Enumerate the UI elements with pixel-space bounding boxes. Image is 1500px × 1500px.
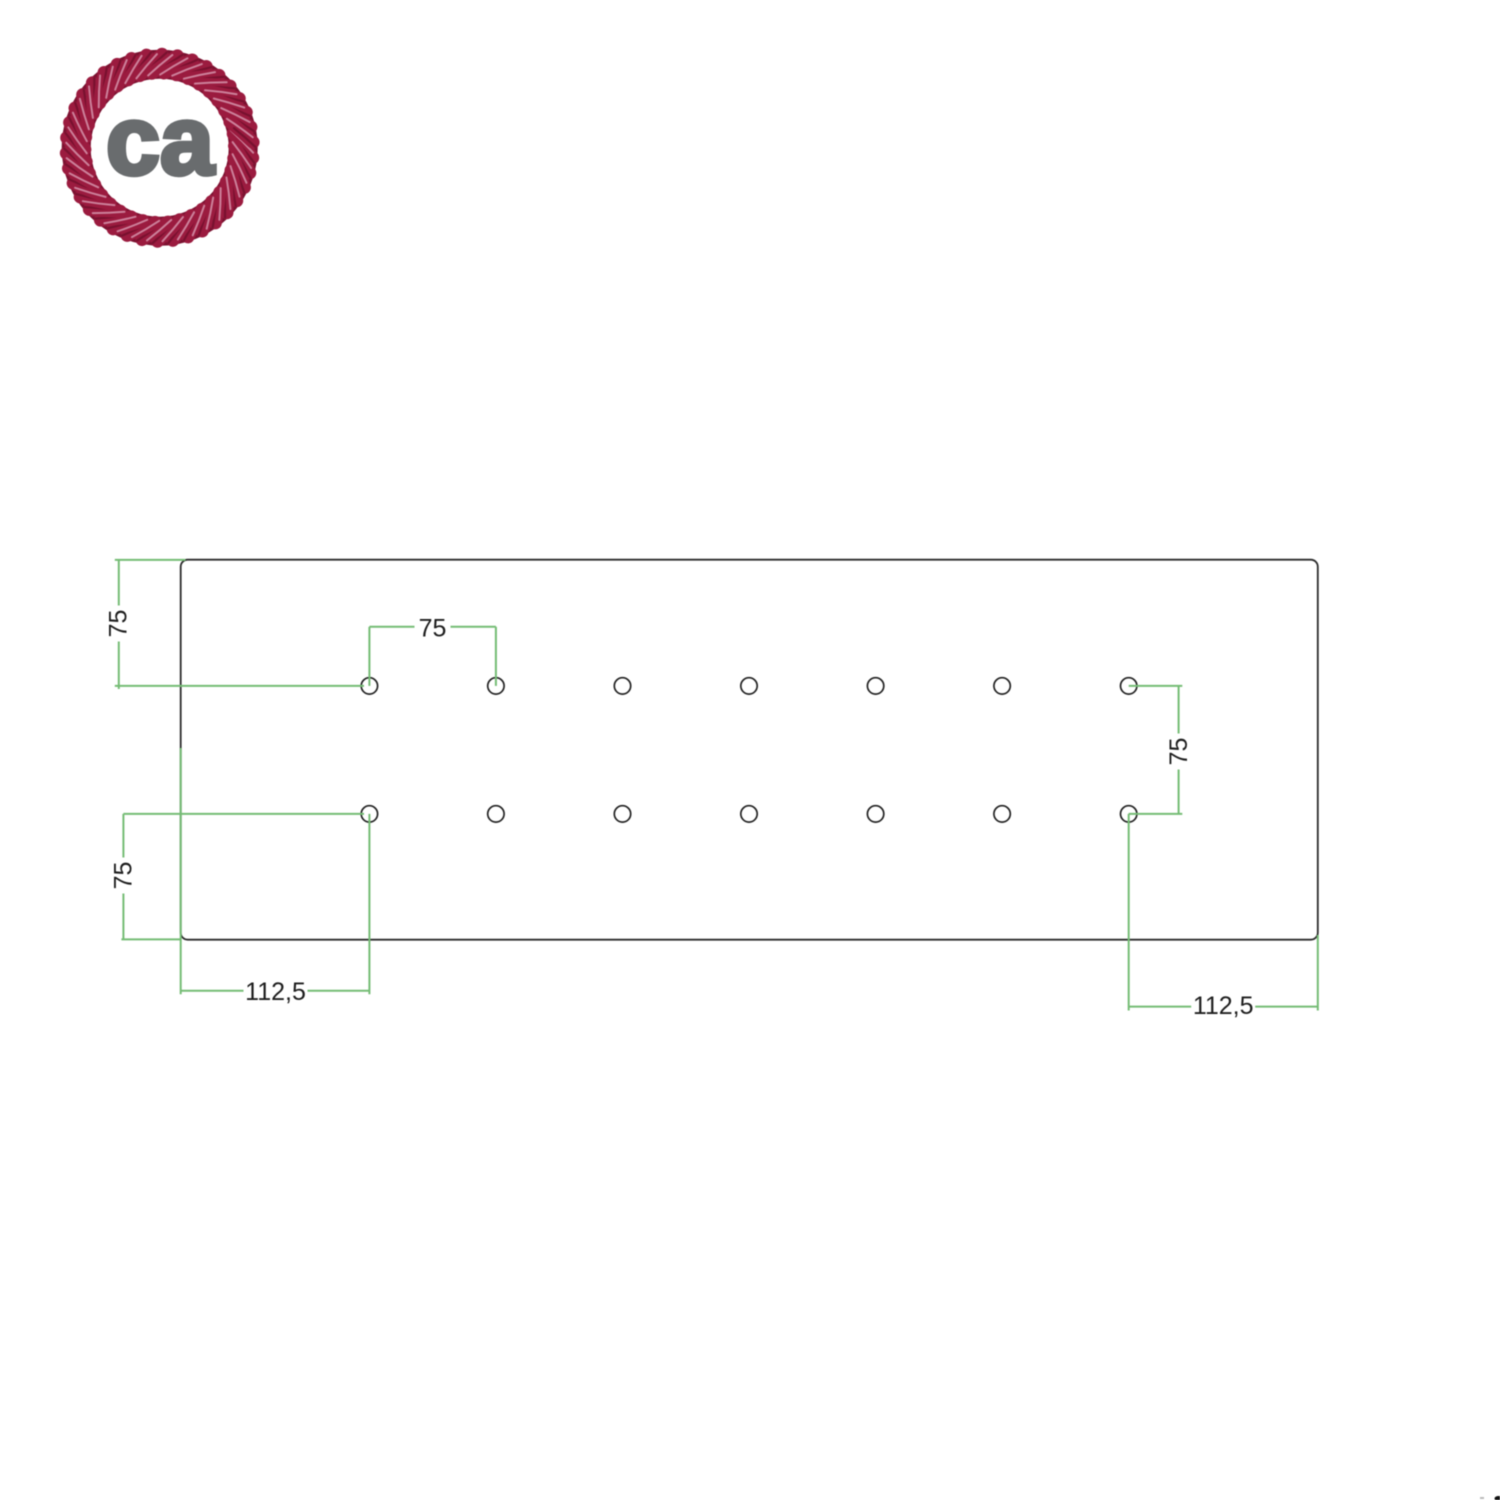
svg-text:112,5: 112,5 <box>245 978 306 1006</box>
svg-text:75: 75 <box>1165 738 1193 766</box>
svg-text:75: 75 <box>105 610 133 638</box>
svg-text:112,5: 112,5 <box>1193 992 1254 1020</box>
svg-text:ca: ca <box>106 86 215 195</box>
svg-text:75: 75 <box>419 615 447 643</box>
svg-text:75: 75 <box>109 862 137 890</box>
